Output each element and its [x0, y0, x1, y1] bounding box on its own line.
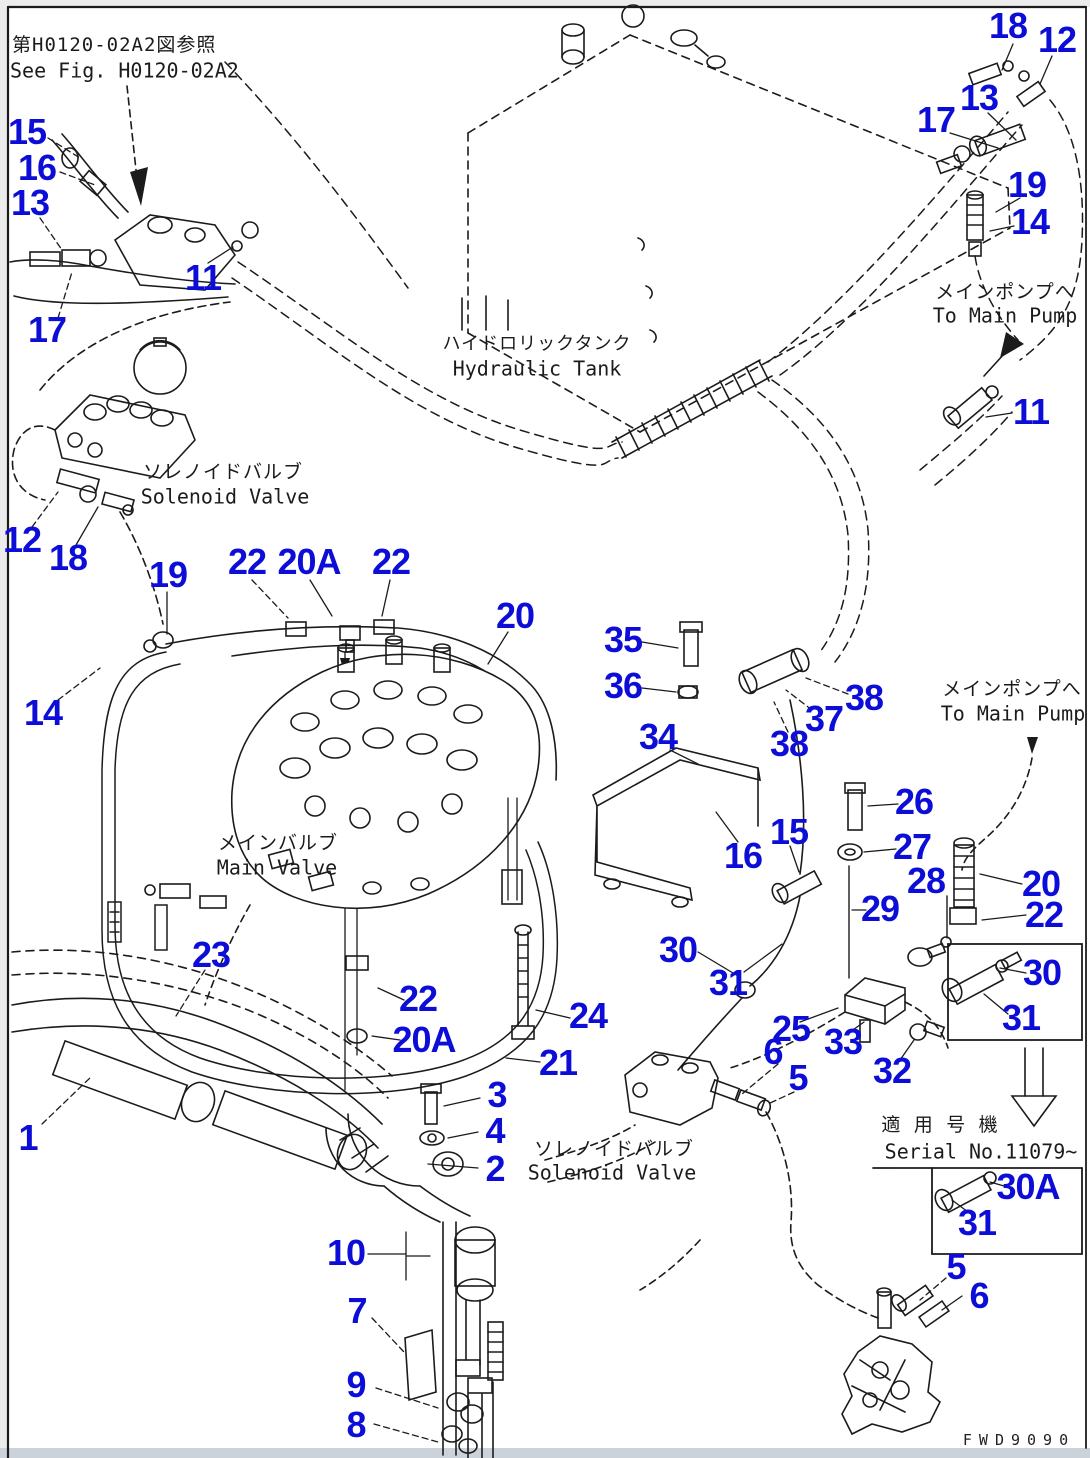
drawing-code: FWD9090: [963, 1431, 1075, 1449]
callout-19: 19: [1008, 167, 1046, 203]
label-to-main-pump-mid-jp: メインポンプへ: [942, 679, 1081, 701]
label-main-valve-en: Main Valve: [217, 857, 337, 880]
callout-21: 21: [539, 1045, 577, 1081]
callout-34: 34: [639, 719, 677, 755]
callout-22: 22: [228, 544, 266, 580]
label-solenoid-valve-bottom-jp: ソレノイドバルブ: [534, 1139, 694, 1161]
callout-22: 22: [372, 544, 410, 580]
callout-23: 23: [192, 937, 230, 973]
callout-31: 31: [709, 965, 747, 1001]
label-solenoid-valve-left-en: Solenoid Valve: [141, 486, 310, 509]
page-frame: [0, 0, 1090, 1458]
callout-9: 9: [346, 1367, 365, 1403]
callout-30: 30: [1023, 955, 1061, 991]
callout-18: 18: [49, 540, 87, 576]
label-main-valve-jp: メインバルブ: [218, 833, 338, 855]
callout-16: 16: [18, 150, 56, 186]
label-hydraulic-tank-en: Hydraulic Tank: [453, 358, 622, 381]
callout-18: 18: [989, 8, 1027, 44]
callout-31: 31: [1002, 1000, 1040, 1036]
callout-4: 4: [485, 1113, 504, 1149]
parts-diagram-page: 第H0120-02A2図参照 See Fig. H0120-02A2 ハイドロリ…: [0, 0, 1090, 1458]
callout-11: 11: [185, 260, 221, 296]
leader-lines: [32, 44, 1052, 1442]
label-solenoid-valve-bottom-en: Solenoid Valve: [528, 1162, 697, 1185]
main-pump: [842, 1285, 949, 1434]
callout-20A: 20A: [392, 1022, 455, 1058]
callout-17: 17: [28, 312, 66, 348]
label-to-main-pump-top-en: To Main Pump: [933, 305, 1078, 328]
callout-7: 7: [347, 1293, 366, 1329]
callout-5: 5: [946, 1249, 965, 1285]
note-serial-en: Serial No.11079~: [885, 1141, 1078, 1164]
label-to-main-pump-top-jp: メインポンプへ: [935, 282, 1074, 304]
callout-15: 15: [8, 114, 46, 150]
hose-end-right: [950, 758, 1032, 924]
see-fig-arrow: [127, 86, 148, 206]
callout-8: 8: [346, 1407, 365, 1443]
note-see-fig-jp: 第H0120-02A2図参照: [12, 35, 216, 57]
callout-17: 17: [917, 102, 955, 138]
callout-12: 12: [3, 522, 41, 558]
callout-6: 6: [969, 1278, 988, 1314]
callout-37: 37: [805, 701, 843, 737]
note-serial-jp: 適 用 号 機: [881, 1115, 998, 1137]
label-solenoid-valve-left-jp: ソレノイドバルブ: [143, 462, 303, 484]
callout-10: 10: [327, 1235, 365, 1271]
callout-20: 20: [496, 598, 534, 634]
callout-22: 22: [1025, 897, 1063, 933]
arrow-lead: [984, 354, 1004, 376]
callout-13: 13: [11, 185, 49, 221]
callout-19: 19: [149, 557, 187, 593]
callout-15: 15: [770, 814, 808, 850]
bottom-left-hoses: [12, 950, 655, 1458]
callout-30: 30: [659, 932, 697, 968]
callout-3: 3: [487, 1077, 506, 1113]
callout-36: 36: [604, 668, 642, 704]
main-valve-body: [145, 636, 540, 908]
callout-29: 29: [861, 891, 899, 927]
callout-32: 32: [873, 1053, 911, 1089]
callout-5: 5: [788, 1060, 807, 1096]
callout-13: 13: [960, 80, 998, 116]
hose-spiral-guard: [612, 360, 772, 458]
diagram-line-art: [0, 0, 1090, 1458]
tank-filler-caps: [462, 5, 725, 342]
callout-2: 2: [485, 1151, 504, 1187]
callout-30A: 30A: [996, 1169, 1059, 1205]
callout-11: 11: [1013, 394, 1049, 430]
callout-33: 33: [824, 1024, 862, 1060]
callout-31: 31: [958, 1205, 996, 1241]
callout-38: 38: [845, 680, 883, 716]
callout-28: 28: [907, 863, 945, 899]
callout-6: 6: [763, 1034, 782, 1070]
bottom-solenoid-valve: [625, 1052, 878, 1318]
callout-38: 38: [770, 726, 808, 762]
callout-1: 1: [18, 1120, 37, 1156]
callout-12: 12: [1038, 22, 1076, 58]
callout-26: 26: [895, 784, 933, 820]
callout-14: 14: [24, 695, 62, 731]
label-to-main-pump-mid-en: To Main Pump: [941, 703, 1086, 726]
callout-20A: 20A: [277, 544, 340, 580]
callout-14: 14: [1011, 204, 1049, 240]
callout-35: 35: [604, 622, 642, 658]
callout-22: 22: [399, 981, 437, 1017]
note-see-fig-en: See Fig. H0120-02A2: [10, 60, 239, 83]
callout-16: 16: [724, 838, 762, 874]
callout-24: 24: [569, 998, 607, 1034]
label-hydraulic-tank-jp: ハイドロリックタンク: [443, 335, 632, 356]
